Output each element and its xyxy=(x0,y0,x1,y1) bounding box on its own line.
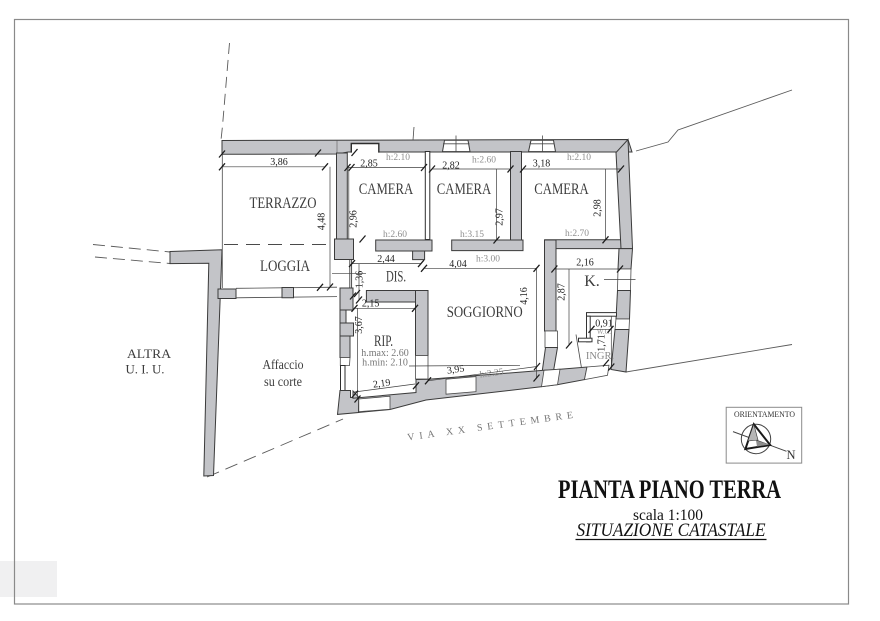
svg-text:2,16: 2,16 xyxy=(576,258,594,269)
svg-text:h:2.70: h:2.70 xyxy=(565,229,589,239)
svg-text:su corte: su corte xyxy=(264,375,302,390)
svg-text:1,71: 1,71 xyxy=(597,334,608,352)
svg-text:h:3.15: h:3.15 xyxy=(460,230,484,240)
svg-text:4,48: 4,48 xyxy=(317,213,328,231)
svg-text:h:3.00: h:3.00 xyxy=(476,255,500,265)
svg-text:h:2.60: h:2.60 xyxy=(383,230,407,240)
svg-text:ORIENTAMENTO: ORIENTAMENTO xyxy=(734,410,795,419)
svg-text:3,86: 3,86 xyxy=(270,157,288,168)
svg-text:Affaccio: Affaccio xyxy=(263,358,304,373)
svg-text:DIS.: DIS. xyxy=(386,269,406,286)
svg-text:SITUAZIONE CATASTALE: SITUAZIONE CATASTALE xyxy=(577,520,766,541)
svg-text:h:2.10: h:2.10 xyxy=(567,153,591,163)
svg-text:U. I. U.: U. I. U. xyxy=(126,362,165,377)
svg-text:2,15: 2,15 xyxy=(362,299,380,310)
svg-text:LOGGIA: LOGGIA xyxy=(260,258,310,275)
svg-text:h:2.60: h:2.60 xyxy=(472,156,496,166)
svg-text:3,18: 3,18 xyxy=(533,159,551,170)
svg-text:3,67: 3,67 xyxy=(354,316,365,334)
svg-text:SOGGIORNO: SOGGIORNO xyxy=(447,304,523,321)
svg-text:CAMERA: CAMERA xyxy=(359,181,414,198)
svg-text:ALTRA: ALTRA xyxy=(127,346,172,361)
svg-text:CAMERA: CAMERA xyxy=(437,181,492,198)
svg-text:TERRAZZO: TERRAZZO xyxy=(250,195,317,212)
svg-text:2,85: 2,85 xyxy=(360,159,378,170)
svg-text:h.min: 2.10: h.min: 2.10 xyxy=(362,358,408,369)
svg-text:2,82: 2,82 xyxy=(442,161,460,172)
svg-text:2,87: 2,87 xyxy=(557,283,568,301)
svg-text:2,98: 2,98 xyxy=(593,199,604,217)
svg-text:K.: K. xyxy=(584,273,600,290)
svg-text:PIANTA PIANO TERRA: PIANTA PIANO TERRA xyxy=(558,475,781,504)
svg-text:N: N xyxy=(786,448,795,462)
svg-text:h:2.10: h:2.10 xyxy=(386,153,410,163)
svg-text:CAMERA: CAMERA xyxy=(534,181,589,198)
svg-text:2,96: 2,96 xyxy=(349,210,360,228)
svg-text:0,91: 0,91 xyxy=(595,319,613,330)
svg-text:4,16: 4,16 xyxy=(519,287,530,305)
